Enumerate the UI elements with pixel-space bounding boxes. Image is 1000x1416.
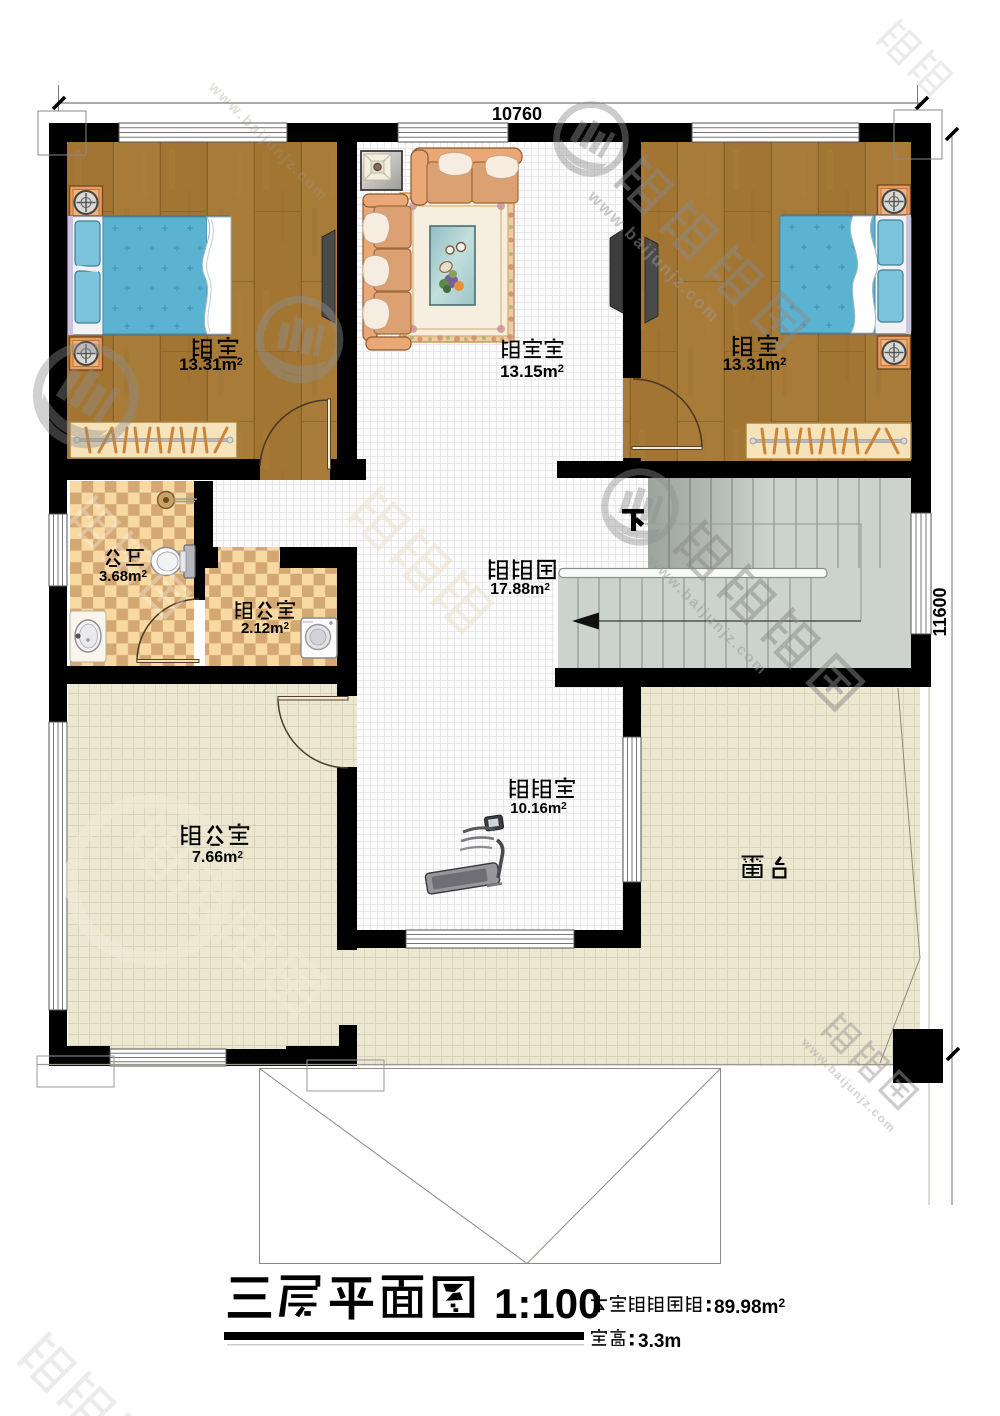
svg-text:+: + (149, 283, 155, 295)
svg-text:+: + (174, 321, 180, 333)
svg-text:+: + (839, 302, 845, 314)
svg-text:+: + (197, 243, 203, 255)
svg-text:+: + (187, 223, 193, 235)
svg-text:+: + (814, 222, 820, 234)
svg-text:+: + (839, 222, 845, 234)
svg-text:+: + (814, 262, 820, 274)
svg-text:+: + (187, 263, 193, 275)
svg-text:13.15m2: 13.15m2 (500, 362, 564, 381)
svg-text:+: + (826, 242, 832, 254)
svg-text:+: + (826, 320, 832, 332)
svg-text:+: + (162, 263, 168, 275)
svg-text:7.66m2: 7.66m2 (192, 849, 243, 866)
svg-text:+: + (137, 263, 143, 275)
svg-text:+: + (839, 262, 845, 274)
svg-text:+: + (112, 303, 118, 315)
svg-text:+: + (814, 302, 820, 314)
svg-text:+: + (174, 283, 180, 295)
svg-text:+: + (789, 222, 795, 234)
svg-text:+: + (137, 223, 143, 235)
svg-text:+: + (137, 303, 143, 315)
svg-text:+: + (187, 303, 193, 315)
svg-text:13.31m2: 13.31m2 (723, 355, 787, 374)
svg-text:89.98m2: 89.98m2 (714, 1296, 785, 1318)
svg-text:+: + (124, 283, 130, 295)
svg-text:2.12m2: 2.12m2 (241, 620, 290, 637)
svg-text:+: + (149, 321, 155, 333)
svg-text:3.3m: 3.3m (638, 1331, 681, 1352)
svg-text:3.68m2: 3.68m2 (99, 568, 148, 585)
svg-text:+: + (174, 243, 180, 255)
svg-text:+: + (801, 242, 807, 254)
svg-text:+: + (789, 262, 795, 274)
svg-text:+: + (197, 283, 203, 295)
svg-text:+: + (162, 223, 168, 235)
svg-text:+: + (124, 321, 130, 333)
svg-text:17.88m2: 17.88m2 (490, 581, 550, 598)
svg-text:+: + (826, 282, 832, 294)
svg-text:1:100: 1:100 (494, 1280, 601, 1327)
svg-text:13.31m2: 13.31m2 (179, 355, 243, 374)
svg-text:10.16m2: 10.16m2 (510, 800, 567, 817)
svg-text:11600: 11600 (930, 587, 950, 636)
svg-text:+: + (149, 243, 155, 255)
svg-text:+: + (124, 243, 130, 255)
svg-text:10760: 10760 (492, 104, 542, 124)
svg-text:+: + (801, 282, 807, 294)
svg-text:+: + (112, 263, 118, 275)
svg-text:+: + (112, 223, 118, 235)
svg-text:+: + (162, 303, 168, 315)
